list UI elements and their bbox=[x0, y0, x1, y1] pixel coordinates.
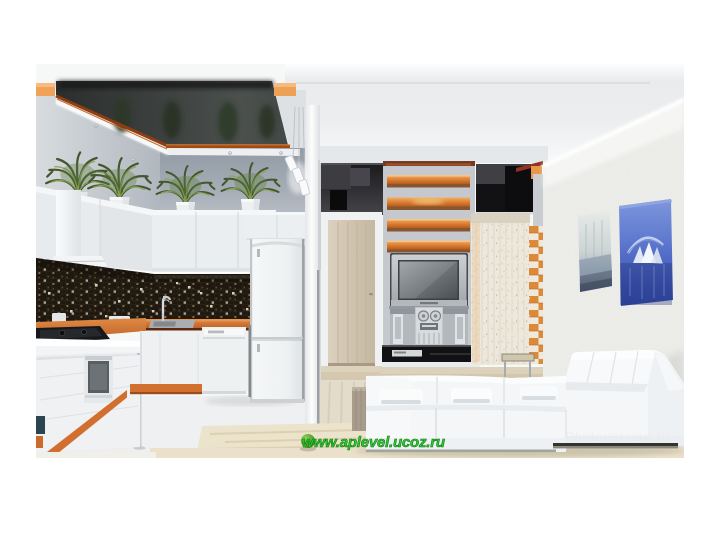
svg-text:www.aplevel.ucoz.ru: www.aplevel.ucoz.ru bbox=[302, 434, 445, 451]
svg-text:Photoversion.ru: Photoversion.ru bbox=[565, 430, 669, 444]
